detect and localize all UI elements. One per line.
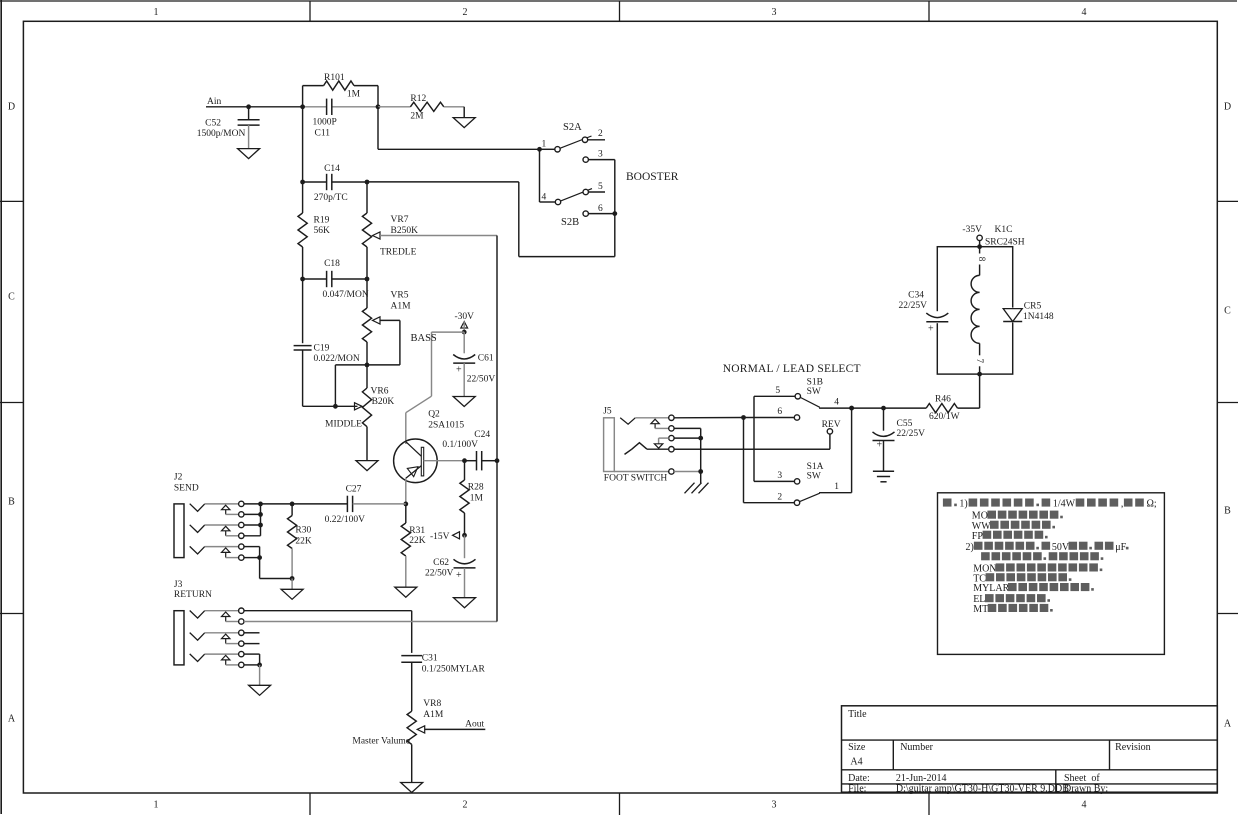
svg-text:μF: μF: [1115, 542, 1126, 553]
svg-text:1: 1: [834, 482, 839, 492]
svg-text:Ain: Ain: [207, 97, 222, 107]
svg-text:Drawn By:: Drawn By:: [1064, 783, 1108, 794]
svg-text:SW: SW: [807, 472, 821, 482]
svg-text:C61: C61: [478, 354, 494, 364]
svg-text:4: 4: [542, 192, 547, 202]
svg-text:1500p/MON: 1500p/MON: [197, 129, 246, 139]
svg-text:+: +: [877, 440, 883, 451]
svg-text:C: C: [8, 292, 15, 303]
svg-text:C27: C27: [346, 485, 362, 495]
svg-text:RETURN: RETURN: [174, 590, 212, 600]
svg-text:C19: C19: [314, 343, 330, 353]
svg-text:SEND: SEND: [174, 483, 199, 493]
svg-text:C52: C52: [205, 118, 221, 128]
svg-text:B20K: B20K: [372, 397, 395, 407]
svg-text:2: 2: [777, 492, 782, 502]
svg-text:22/25V: 22/25V: [899, 301, 928, 311]
svg-text:1/4W: 1/4W: [1053, 499, 1076, 510]
svg-text:MYLAR: MYLAR: [973, 583, 1009, 594]
svg-text:50V: 50V: [1052, 542, 1070, 553]
svg-text:A1M: A1M: [391, 301, 412, 311]
svg-text:D:\guitar amp\GT30-H\GT30-VER: D:\guitar amp\GT30-H\GT30-VER 9.DDB: [896, 783, 1069, 794]
svg-text:,: ,: [1121, 499, 1124, 510]
svg-text:D: D: [1224, 102, 1231, 113]
svg-text:NORMAL / LEAD SELECT: NORMAL / LEAD SELECT: [723, 363, 861, 375]
svg-text:+: +: [456, 570, 462, 581]
svg-text:S1B: S1B: [807, 377, 823, 387]
svg-text:MIDDLE: MIDDLE: [325, 420, 362, 430]
svg-text:2M: 2M: [410, 112, 424, 122]
svg-text:R46: R46: [935, 395, 951, 405]
svg-text:6: 6: [598, 204, 603, 214]
svg-text:R19: R19: [314, 216, 330, 226]
svg-text:B: B: [1224, 506, 1231, 517]
svg-text:1000P: 1000P: [313, 118, 337, 128]
svg-text:A1M: A1M: [423, 710, 444, 720]
svg-text:K1C: K1C: [995, 225, 1013, 235]
svg-text:1: 1: [154, 7, 159, 18]
svg-text:-35V: -35V: [962, 225, 982, 235]
svg-text:J3: J3: [174, 580, 183, 590]
svg-text:5: 5: [775, 386, 780, 396]
svg-text:22/25V: 22/25V: [897, 429, 926, 439]
svg-text:270p/TC: 270p/TC: [314, 193, 348, 203]
svg-text:56K: 56K: [314, 226, 331, 236]
svg-text:Aout: Aout: [465, 719, 484, 729]
svg-text:VR5: VR5: [391, 291, 409, 301]
svg-text:0.022/MON: 0.022/MON: [314, 354, 360, 364]
svg-text:Ω;: Ω;: [1147, 499, 1157, 510]
svg-text:-15V: -15V: [430, 532, 450, 542]
svg-text:0.047/MON: 0.047/MON: [323, 290, 369, 300]
svg-text:File:: File:: [848, 783, 866, 794]
svg-text:3: 3: [777, 471, 782, 481]
svg-text:C11: C11: [315, 129, 331, 139]
svg-text:C34: C34: [908, 290, 924, 300]
svg-text:J2: J2: [174, 473, 183, 483]
svg-text:FOOT SWITCH: FOOT SWITCH: [604, 474, 668, 484]
svg-text:Revision: Revision: [1115, 742, 1151, 753]
svg-text:0.1/100V: 0.1/100V: [442, 440, 478, 450]
svg-text:R31: R31: [409, 526, 425, 536]
svg-text:R101: R101: [324, 73, 345, 83]
svg-text:S2B: S2B: [561, 217, 579, 228]
svg-text:2: 2: [463, 7, 468, 18]
svg-text:+: +: [928, 324, 934, 335]
svg-text:1: 1: [542, 140, 547, 150]
svg-text:Sheet: Sheet: [1064, 773, 1086, 784]
svg-text:R28: R28: [468, 483, 484, 493]
svg-text:22K: 22K: [409, 536, 426, 546]
svg-text:A: A: [8, 714, 16, 725]
svg-text:S1A: S1A: [807, 462, 824, 472]
svg-text:7: 7: [975, 359, 985, 364]
svg-text:of: of: [1091, 773, 1100, 784]
svg-text:VR6: VR6: [371, 387, 389, 397]
svg-text:1): 1): [959, 499, 967, 510]
svg-text:3: 3: [772, 7, 777, 18]
svg-text:0.22/100V: 0.22/100V: [325, 515, 366, 525]
svg-text:C: C: [1224, 306, 1231, 317]
svg-text:D: D: [8, 102, 15, 113]
svg-text:B: B: [8, 497, 15, 508]
svg-text:BASS: BASS: [411, 333, 437, 344]
svg-text:2): 2): [966, 542, 974, 553]
svg-text:Master Valume: Master Valume: [352, 737, 410, 747]
svg-text:8: 8: [977, 257, 987, 262]
svg-text:3: 3: [598, 150, 603, 160]
svg-text:R30: R30: [295, 526, 311, 536]
svg-text:2: 2: [463, 800, 468, 811]
svg-text:Date:: Date:: [848, 773, 870, 784]
svg-text:Q2: Q2: [428, 410, 440, 420]
svg-text:VR8: VR8: [423, 699, 441, 709]
svg-text:3: 3: [772, 800, 777, 811]
svg-text:4: 4: [1082, 800, 1087, 811]
svg-text:Number: Number: [900, 742, 933, 753]
svg-text:J5: J5: [603, 407, 612, 417]
svg-text:TREDLE: TREDLE: [380, 248, 417, 258]
svg-text:1: 1: [154, 800, 159, 811]
svg-text:C62: C62: [433, 558, 449, 568]
svg-text:1M: 1M: [347, 89, 361, 99]
svg-text:22K: 22K: [295, 536, 312, 546]
svg-text:CR5: CR5: [1024, 302, 1042, 312]
svg-text:C31: C31: [422, 654, 438, 664]
svg-text:C18: C18: [324, 259, 340, 269]
svg-text:VR7: VR7: [391, 215, 409, 225]
svg-text:Title: Title: [848, 709, 867, 720]
svg-text:2SA1015: 2SA1015: [428, 420, 464, 430]
svg-text:620/1W: 620/1W: [929, 412, 960, 422]
svg-text:5: 5: [598, 182, 603, 192]
svg-text:C14: C14: [324, 164, 340, 174]
svg-text:FP: FP: [972, 531, 984, 542]
svg-text:Size: Size: [848, 742, 866, 753]
svg-text:A: A: [1224, 719, 1232, 730]
svg-text:22/50V: 22/50V: [425, 569, 454, 579]
svg-text:B250K: B250K: [391, 226, 419, 236]
svg-text:4: 4: [1082, 7, 1087, 18]
svg-text:2: 2: [598, 129, 603, 139]
svg-text:4: 4: [834, 398, 839, 408]
svg-text:A4: A4: [850, 756, 862, 767]
svg-text:S2A: S2A: [563, 122, 582, 133]
svg-text:BOOSTER: BOOSTER: [626, 171, 679, 183]
svg-text:0.1/250MYLAR: 0.1/250MYLAR: [422, 664, 486, 674]
svg-text:SW: SW: [807, 387, 821, 397]
svg-text:22/50V: 22/50V: [467, 375, 496, 385]
svg-text:1N4148: 1N4148: [1023, 312, 1054, 322]
svg-text:MT: MT: [973, 604, 988, 615]
svg-text:R12: R12: [410, 94, 426, 104]
svg-text:+: +: [456, 365, 462, 376]
svg-text:C24: C24: [474, 430, 490, 440]
svg-text:6: 6: [777, 407, 782, 417]
svg-text:1M: 1M: [470, 493, 484, 503]
svg-text:21-Jun-2014: 21-Jun-2014: [896, 773, 947, 784]
svg-text:C55: C55: [897, 419, 913, 429]
